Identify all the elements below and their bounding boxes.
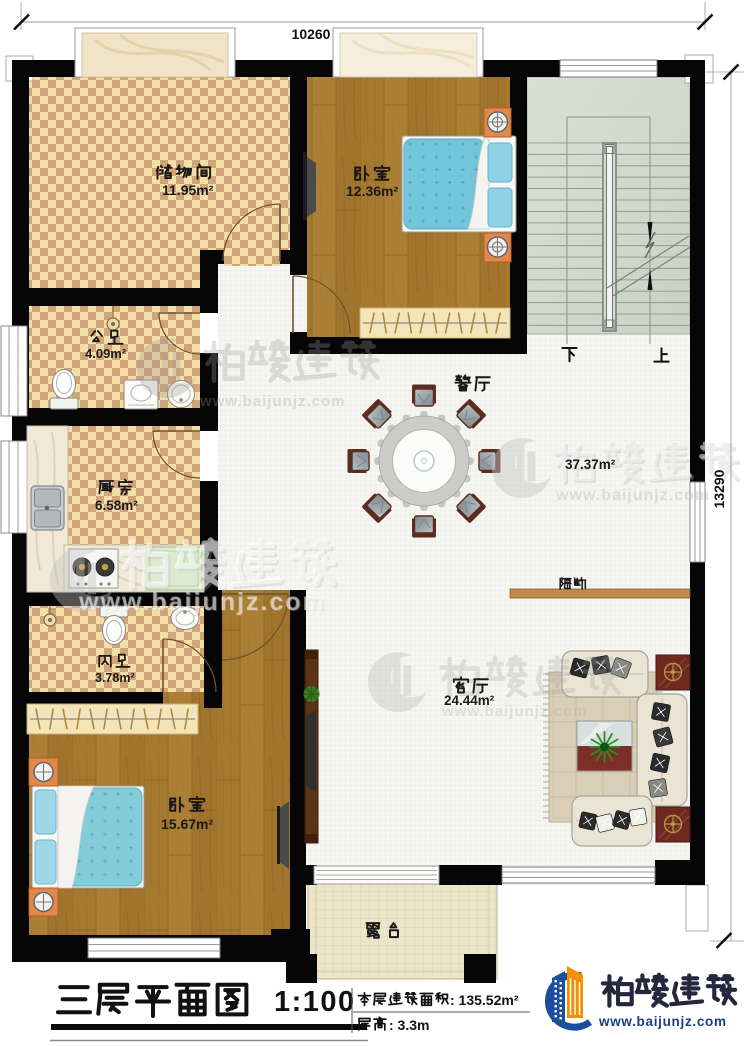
svg-text:: 3.3m: : 3.3m <box>389 1017 429 1033</box>
svg-text:www.baijunjz.com: www.baijunjz.com <box>199 393 345 410</box>
svg-text:www.baijunjz.com: www.baijunjz.com <box>555 487 710 504</box>
svg-text:12.36m²: 12.36m² <box>346 183 398 199</box>
svg-text:10260: 10260 <box>292 26 331 42</box>
svg-text:6.58m²: 6.58m² <box>95 498 138 513</box>
svg-text:: 135.52m²: : 135.52m² <box>450 992 519 1008</box>
svg-text:15.67m²: 15.67m² <box>161 816 213 832</box>
svg-text:3.78m²: 3.78m² <box>95 671 135 685</box>
svg-text:13290: 13290 <box>711 469 727 508</box>
svg-text:www.baijunjz.com: www.baijunjz.com <box>598 1014 727 1029</box>
svg-text:1:100: 1:100 <box>274 986 356 1018</box>
svg-text:www.baijunjz.com: www.baijunjz.com <box>78 588 327 616</box>
svg-text:4.09m²: 4.09m² <box>85 346 127 361</box>
svg-text:37.37m²: 37.37m² <box>565 457 616 472</box>
svg-text:11.95m²: 11.95m² <box>162 182 214 198</box>
svg-text:24.44m²: 24.44m² <box>444 693 495 708</box>
